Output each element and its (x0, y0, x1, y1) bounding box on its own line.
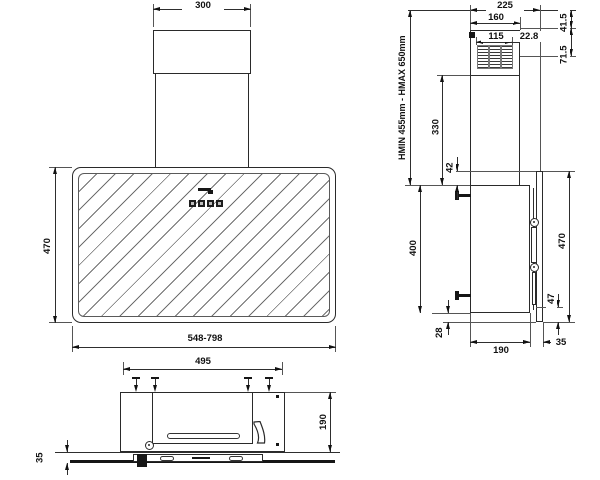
dim-label-outlet-top-offset: 41.5 (558, 10, 570, 36)
arrowhead (267, 385, 271, 392)
dim-label-body-height: 400 (407, 232, 420, 264)
dim-line-panel-height (569, 171, 570, 322)
flange-mark (276, 395, 279, 398)
extension-line (452, 171, 536, 172)
arrowhead (446, 322, 450, 329)
dim-label-panel-height: 470 (556, 224, 569, 258)
dim-label-bottom-thickness: 35 (34, 448, 46, 468)
dim-label-body-depth: 190 (486, 345, 516, 356)
arrowhead (65, 463, 69, 470)
extension-line (530, 313, 531, 347)
outlet-wedge (251, 421, 267, 444)
arrowhead (418, 185, 422, 192)
top-mount-bracket (469, 32, 475, 38)
arrowhead (408, 10, 412, 17)
arrowhead (470, 340, 477, 344)
dim-line-width-range (72, 347, 336, 348)
vent-grille (489, 45, 501, 69)
arrowhead (470, 21, 477, 25)
dim-label-chimney-depth: 160 (478, 12, 514, 23)
dim-line-body-width (123, 369, 282, 370)
extension-line (282, 362, 283, 375)
body-top-extension (405, 185, 470, 186)
arrowhead (440, 178, 444, 185)
wall-bracket (458, 294, 471, 297)
dim-label-outlet-offset: 22.8 (515, 31, 543, 42)
dim-label-body-width: 495 (186, 356, 220, 367)
technical-drawing: 300 470 548-798 225 160 115 22.8 (0, 0, 600, 480)
arrowhead (470, 8, 477, 12)
dim-label-width-range: 548-798 (164, 333, 246, 344)
arrowhead (53, 167, 57, 174)
arrowhead (523, 340, 530, 344)
vent-grille (501, 45, 513, 69)
dim-label-top-overhang: 42 (444, 158, 456, 178)
dim-line-front-height (55, 167, 56, 323)
dim-label-chimney-lower: 330 (430, 112, 442, 142)
dim-line-mount-height (410, 10, 411, 185)
arrowhead (513, 21, 520, 25)
dim-label-chimney-width: 300 (182, 0, 224, 11)
arrowhead (244, 7, 251, 11)
dim-line-chimney-lower (442, 75, 443, 185)
dim-label-outlet-height: 71.5 (558, 42, 570, 68)
arrowhead (408, 178, 412, 185)
arrowhead (543, 340, 550, 344)
vent-grille (477, 45, 489, 69)
arrowhead (329, 345, 336, 349)
arrowhead (65, 445, 69, 452)
arrowhead (567, 315, 571, 322)
chimney-joint-line (470, 75, 520, 76)
dim-label-mount-height: HMIN 455mm - HMAX 650mm (396, 22, 409, 174)
extension-line (540, 5, 541, 171)
arrowhead (123, 367, 130, 371)
strip-clip (137, 454, 147, 467)
control-button (216, 200, 223, 207)
glass-hatch-pattern (78, 173, 330, 317)
dim-label-total-depth: 225 (486, 0, 524, 11)
dim-label-panel-thickness: 35 (551, 337, 571, 348)
flange-mark (276, 443, 279, 446)
control-button (198, 200, 205, 207)
hinge-pivot (530, 218, 539, 227)
front-chimney-upper (153, 30, 251, 74)
dim-label-outlet-width: 115 (481, 31, 511, 42)
brand-logo (208, 190, 213, 194)
arrowhead (134, 385, 138, 392)
arrowhead (246, 385, 250, 392)
control-button (207, 200, 214, 207)
hinge-rod (531, 227, 537, 263)
extension-line (432, 313, 470, 314)
arrowhead (72, 345, 79, 349)
extension-line (443, 322, 536, 323)
side-glass-panel (536, 171, 543, 322)
arrowhead (440, 75, 444, 82)
arrowhead (446, 306, 450, 313)
arrowhead (455, 185, 459, 192)
arrowhead (556, 322, 560, 329)
extension-line (512, 37, 513, 45)
strip-slot (229, 456, 243, 461)
arrowhead (328, 445, 332, 452)
pivot-bolt (145, 441, 154, 450)
arrowhead (533, 8, 540, 12)
hinge-pivot (530, 263, 539, 272)
arrowhead (328, 392, 332, 399)
arrowhead (153, 385, 157, 392)
filter-slot (167, 433, 240, 439)
front-chimney-lower (155, 72, 249, 168)
dim-line-bottom-depth (330, 392, 331, 452)
arrowhead (567, 171, 571, 178)
glass-top-edge (55, 452, 340, 453)
arrowhead (418, 306, 422, 313)
dim-label-bottom-clearance: 47 (546, 289, 557, 309)
dim-label-bottom-overhang: 28 (434, 324, 445, 342)
hinge-rod (532, 272, 536, 305)
arrowhead (153, 7, 160, 11)
control-button (189, 200, 196, 207)
dim-label-front-height: 470 (41, 227, 54, 265)
strip-slot (160, 456, 174, 461)
strip-mark (192, 457, 210, 459)
arrowhead (53, 316, 57, 323)
arrowhead (275, 367, 282, 371)
dim-line-body-height (420, 185, 421, 313)
wall-bracket (458, 194, 471, 197)
side-body (470, 185, 530, 313)
dim-label-bottom-depth: 190 (317, 407, 330, 437)
